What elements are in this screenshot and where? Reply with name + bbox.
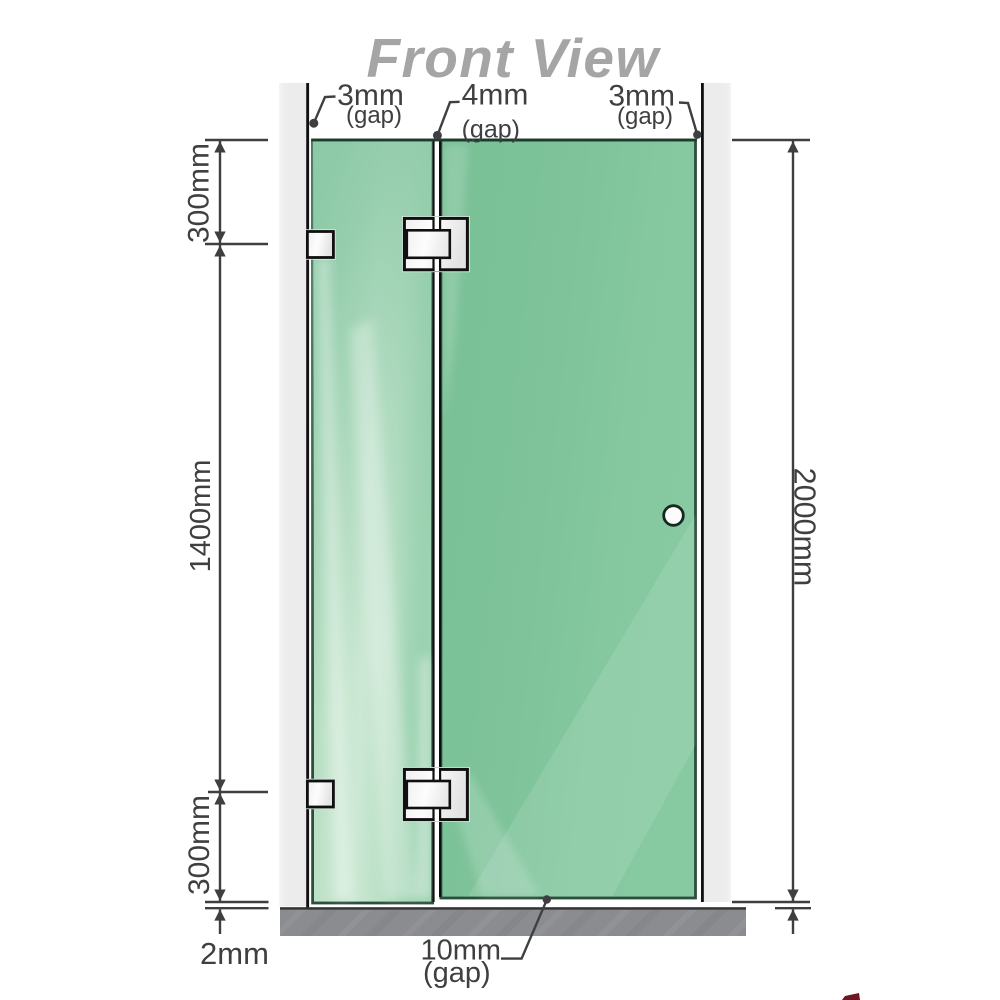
svg-text:(gap): (gap) (462, 115, 520, 143)
svg-text:300mm: 300mm (183, 143, 216, 243)
svg-text:(gap): (gap) (617, 103, 673, 130)
svg-text:2000mm: 2000mm (788, 468, 822, 587)
svg-text:(gap): (gap) (423, 957, 491, 989)
svg-text:2mm: 2mm (200, 936, 269, 971)
svg-text:(gap): (gap) (346, 102, 402, 129)
svg-text:300mm: 300mm (183, 795, 216, 895)
svg-text:1400mm: 1400mm (185, 460, 217, 573)
svg-text:4mm: 4mm (462, 79, 529, 112)
